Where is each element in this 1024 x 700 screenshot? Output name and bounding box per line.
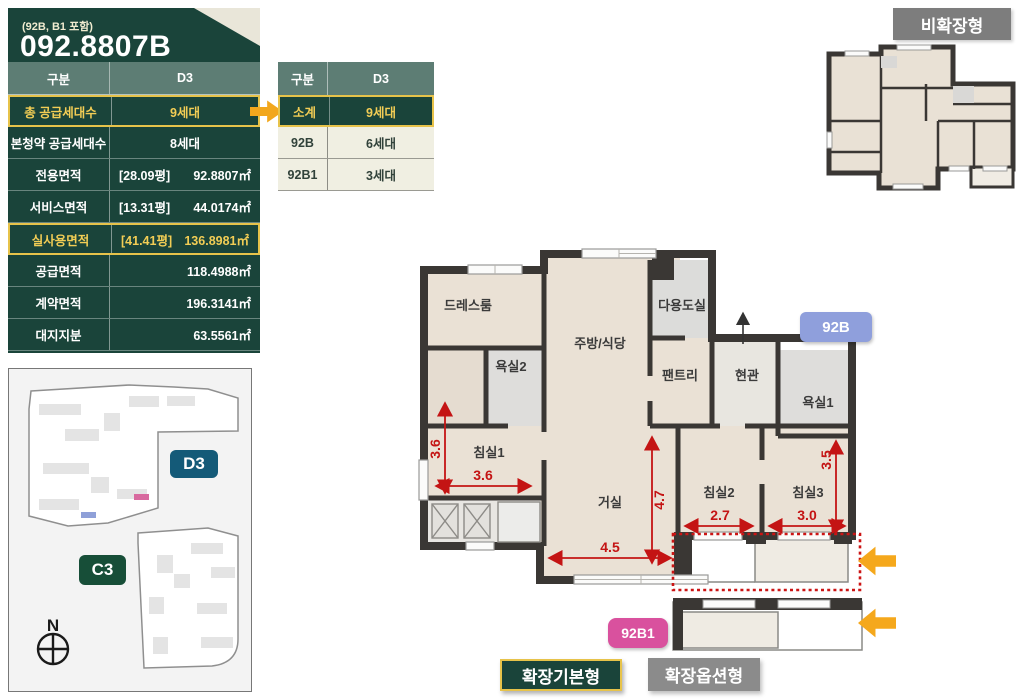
room-label-bathroom1: 욕실1 <box>802 395 833 410</box>
room-label-dress-room: 드레스룸 <box>444 298 492 313</box>
table-row-land-share: 대지지분 63.5561㎡ <box>8 319 260 351</box>
strip-balcony <box>680 612 778 648</box>
compass-north-label: N <box>47 616 59 635</box>
breakdown-row-92b: 92B 6세대 <box>278 127 434 159</box>
table-row-service-area: 서비스면적 [13.31평] 44.0174㎡ <box>8 191 260 223</box>
room-label-utility-room: 다용도실 <box>658 298 706 313</box>
dim-living-width: 4.5 <box>600 539 620 555</box>
site-location-map: N <box>8 368 252 692</box>
row-label: 총 공급세대수 <box>10 97 112 125</box>
breakdown-row-92b1: 92B1 3세대 <box>278 159 434 191</box>
unit-breakdown-table: 구분 D3 소계 9세대 92B 6세대 92B1 3세대 <box>278 62 434 191</box>
sqm-value: 63.5561㎡ <box>193 325 251 344</box>
pyeong-value: [28.09평] <box>119 165 170 184</box>
row-value-group: [13.31평] 44.0174㎡ <box>110 191 260 222</box>
non-expanded-type-badge: 비확장형 <box>893 8 1011 40</box>
sqm-value: 118.4988㎡ <box>187 261 251 280</box>
expanded-basic-type-badge: 확장기본형 <box>500 659 622 691</box>
table-row-actual-use-area: 실사용면적 [41.41평] 136.8981㎡ <box>8 223 260 255</box>
folded-corner-decoration <box>194 8 260 46</box>
dim-bedroom1-height: 3.6 <box>427 439 443 459</box>
row-value-group: [41.41평] 136.8981㎡ <box>112 225 258 253</box>
dim-bedroom2-width: 2.7 <box>710 507 730 523</box>
strip-wall-stub <box>673 610 683 650</box>
row-value: 9세대 <box>112 97 258 125</box>
pyeong-value: [13.31평] <box>119 197 170 216</box>
table-row-supply-area: 공급면적 118.4988㎡ <box>8 255 260 287</box>
row-label: 실사용면적 <box>10 225 112 253</box>
unit-card-title: 092.8807B <box>20 30 171 64</box>
compass: N <box>38 616 68 664</box>
sqm-value: 44.0174㎡ <box>193 197 251 216</box>
row-label: 대지지분 <box>8 319 110 350</box>
sqm-value: 136.8981㎡ <box>184 230 249 249</box>
dim-bedroom1-width: 3.6 <box>473 467 493 483</box>
unit-92b-badge: 92B <box>800 312 872 342</box>
dim-bedroom3-width: 3.0 <box>797 507 817 523</box>
row-label: 공급면적 <box>8 255 110 286</box>
dim-bedroom3-height: 3.5 <box>818 450 834 470</box>
row-label: 92B1 <box>278 159 328 190</box>
highlight-building-blue <box>81 512 96 518</box>
table-row-presale-units: 본청약 공급세대수 8세대 <box>8 127 260 159</box>
row-value: 6세대 <box>328 127 434 158</box>
row-value-group: 118.4988㎡ <box>110 255 260 286</box>
mini-floor-plan-non-expanded <box>823 44 1021 204</box>
floor-plan-strip-92b1 <box>668 594 868 656</box>
strip-top-wall <box>673 598 862 610</box>
room-label-living-room: 거실 <box>598 495 622 510</box>
breakdown-row-subtotal: 소계 9세대 <box>278 95 434 127</box>
row-value-group: 196.3141㎡ <box>110 287 260 318</box>
room-label-bedroom1: 침실1 <box>473 445 504 460</box>
mini-plan-bath2 <box>953 86 974 103</box>
row-value: 8세대 <box>110 127 260 158</box>
pyeong-value: [41.41평] <box>121 230 172 249</box>
room-label-bathroom2: 욕실2 <box>495 359 526 374</box>
sqm-value: 196.3141㎡ <box>186 293 251 312</box>
room-label-pantry: 팬트리 <box>662 368 698 383</box>
room-label-bedroom2: 침실2 <box>703 485 734 500</box>
row-label: 92B <box>278 127 328 158</box>
row-value: 9세대 <box>330 97 432 125</box>
room-label-bedroom3: 침실3 <box>792 485 823 500</box>
unit-info-table: 구분 D3 총 공급세대수 9세대 본청약 공급세대수 8세대 전용면적 [28… <box>8 62 260 351</box>
highlight-building-pink <box>134 494 149 500</box>
row-value-group: [28.09평] 92.8807㎡ <box>110 159 260 190</box>
header-col2: D3 <box>110 62 260 94</box>
breakdown-header-row: 구분 D3 <box>278 62 434 95</box>
unit-92b1-badge: 92B1 <box>608 618 668 648</box>
wall-block <box>652 258 674 280</box>
elevator-core <box>432 502 540 542</box>
block-d3-badge: D3 <box>170 450 218 478</box>
row-label: 소계 <box>280 97 330 125</box>
sqm-value: 92.8807㎡ <box>193 165 251 184</box>
brochure-page: (92B, B1 포함) 092.8807B 구분 D3 총 공급세대수 9세대… <box>0 0 1024 700</box>
row-value-group: 63.5561㎡ <box>110 319 260 350</box>
row-label: 전용면적 <box>8 159 110 190</box>
table-row-total-units: 총 공급세대수 9세대 <box>8 95 260 127</box>
main-floor-plan-92b: 드레스룸 주방/식당 다용도실 욕실2 팬트리 현관 욕실1 침실1 거실 침실… <box>410 246 870 596</box>
header-col1: 구분 <box>278 62 328 95</box>
unit-info-card: (92B, B1 포함) 092.8807B 구분 D3 총 공급세대수 9세대… <box>8 8 260 353</box>
header-col2: D3 <box>328 62 434 95</box>
row-label: 본청약 공급세대수 <box>8 127 110 158</box>
row-value: 3세대 <box>328 159 434 190</box>
dim-living-height: 4.7 <box>651 490 667 510</box>
block-c3-badge: C3 <box>79 555 126 585</box>
table-row-contract-area: 계약면적 196.3141㎡ <box>8 287 260 319</box>
table-header-row: 구분 D3 <box>8 62 260 95</box>
room-label-entrance: 현관 <box>735 368 759 383</box>
row-label: 계약면적 <box>8 287 110 318</box>
mini-plan-bath <box>881 56 897 68</box>
room-label-kitchen-dining: 주방/식당 <box>574 336 625 351</box>
row-label: 서비스면적 <box>8 191 110 222</box>
table-row-exclusive-area: 전용면적 [28.09평] 92.8807㎡ <box>8 159 260 191</box>
header-col1: 구분 <box>8 62 110 94</box>
expanded-option-type-badge: 확장옵션형 <box>648 658 760 691</box>
